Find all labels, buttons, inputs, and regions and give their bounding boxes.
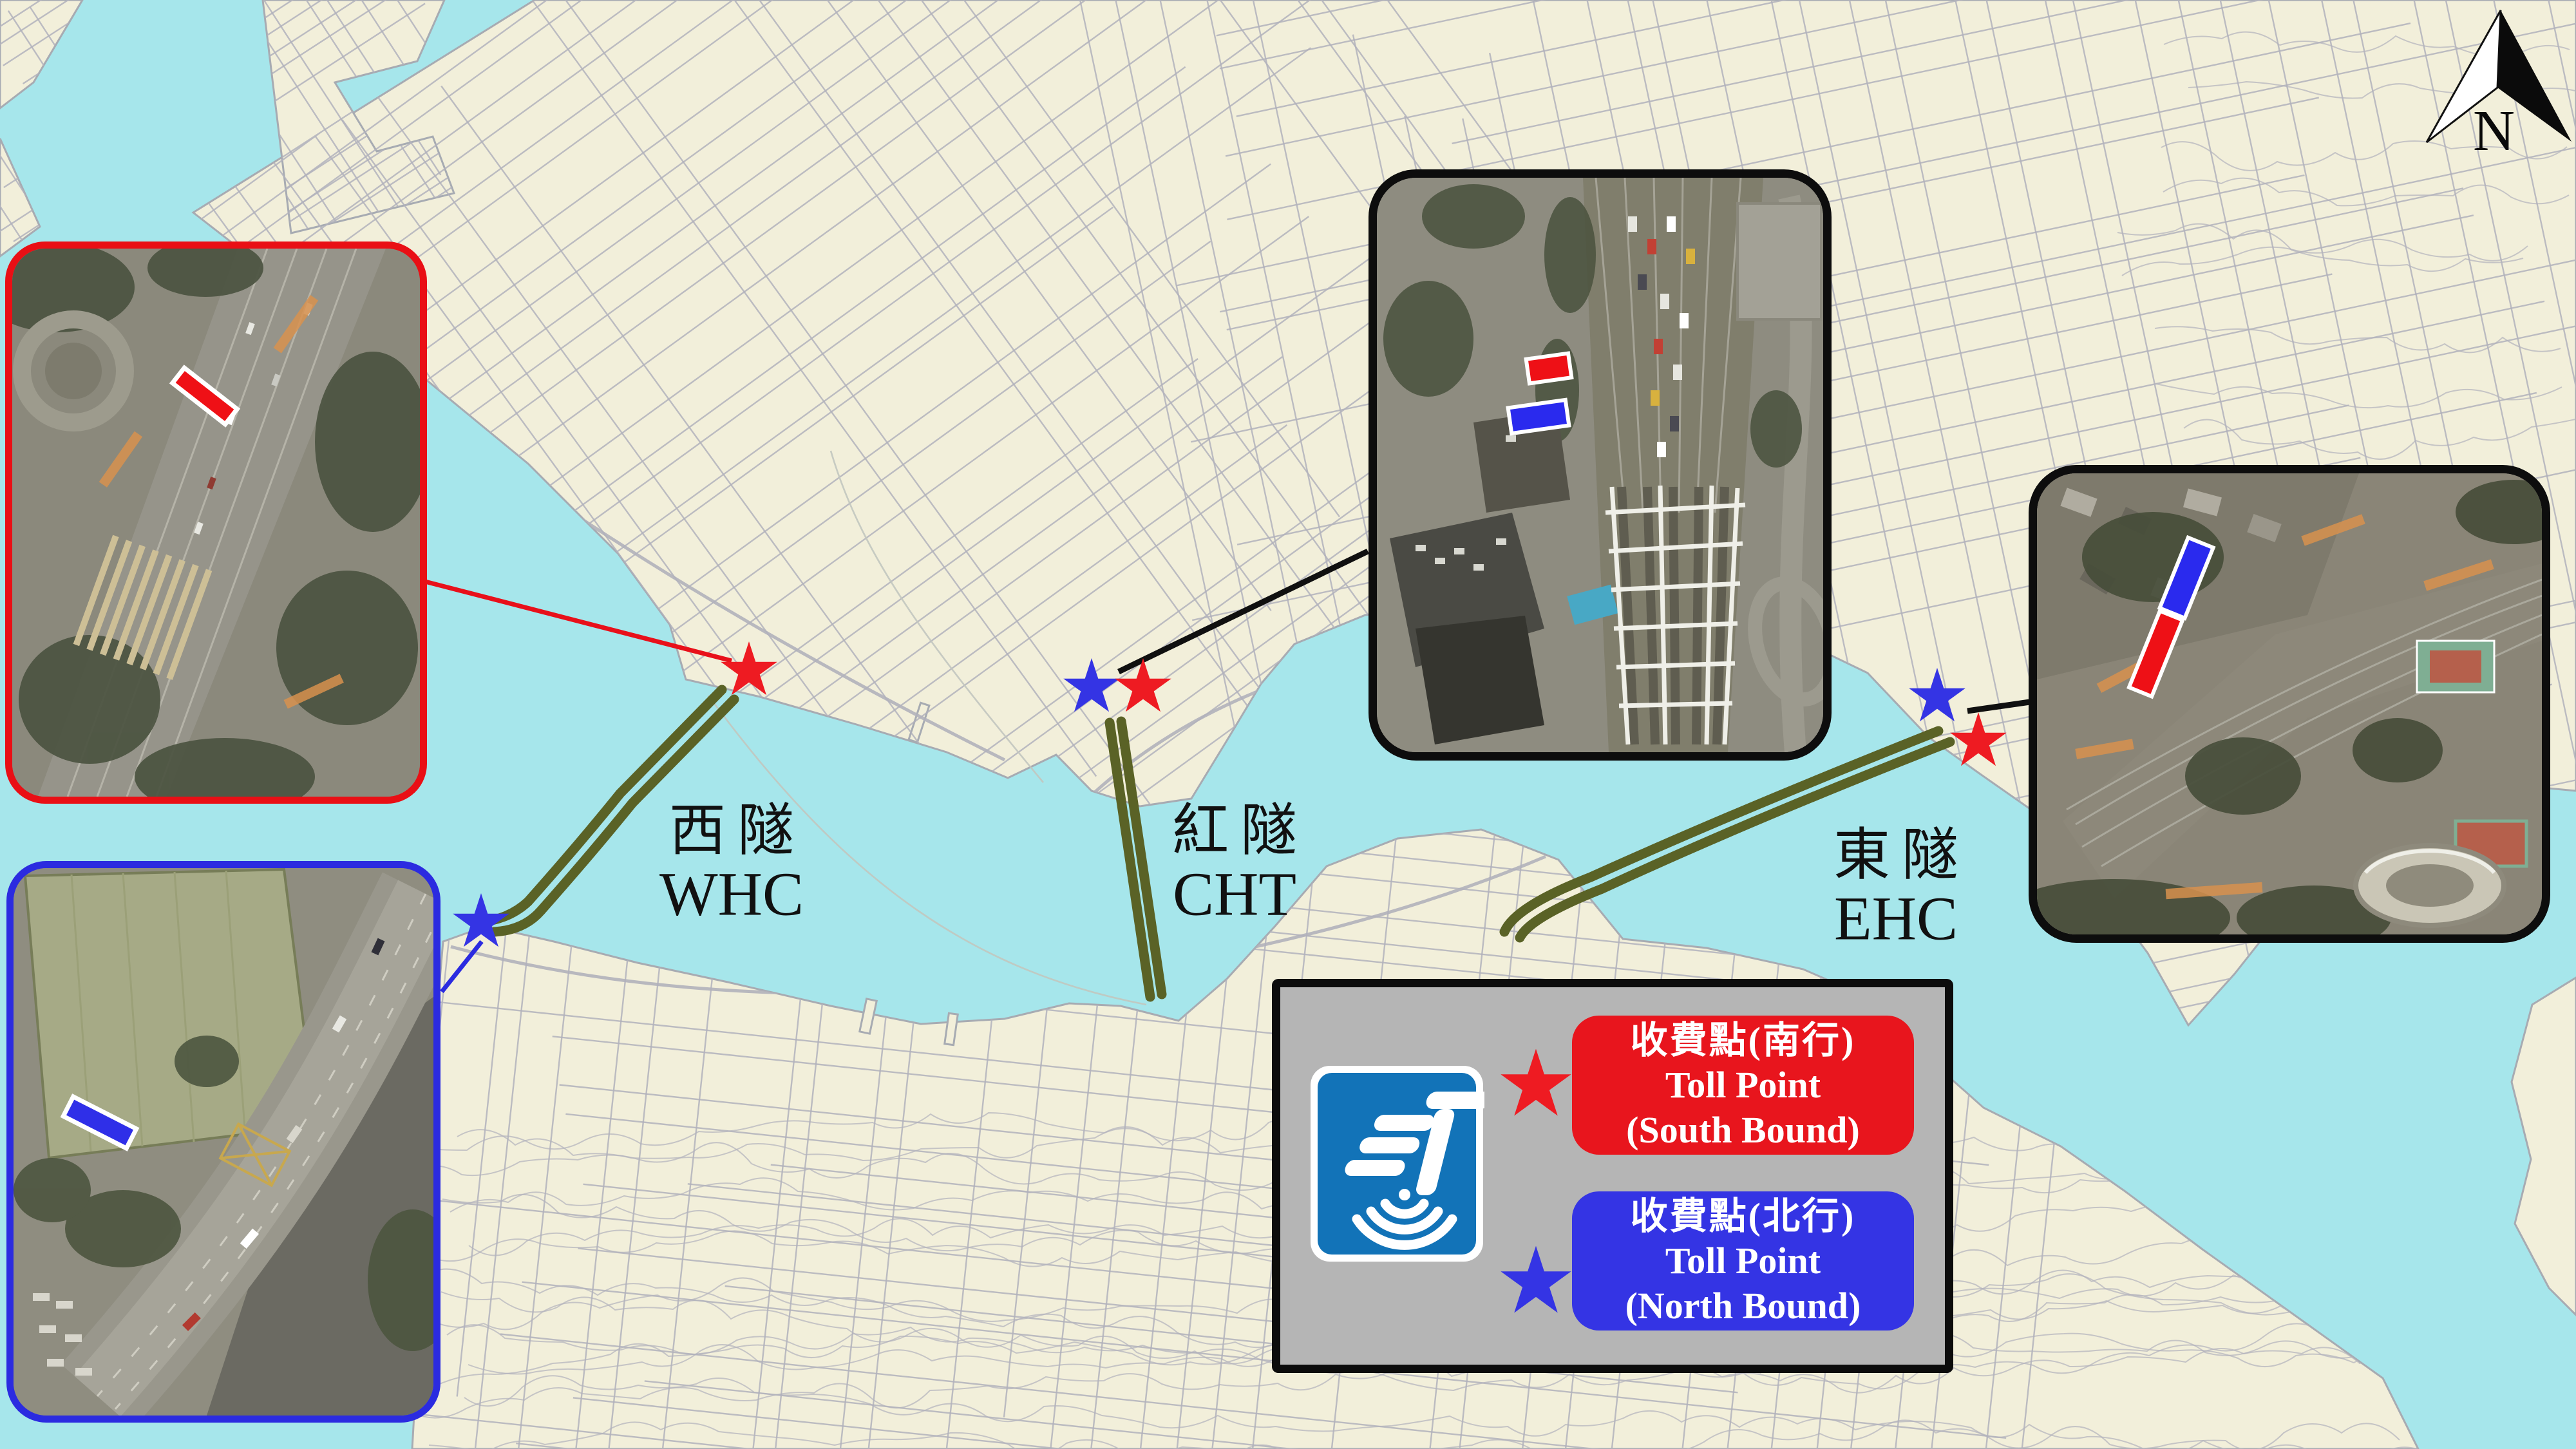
toll-location-marker-north [1508,400,1569,433]
tunnel-label-ehc-abbr: EHC [1822,886,1970,952]
toll-location-marker-south [1526,354,1572,384]
legend-red-star-icon [1494,1044,1578,1128]
legend-box: 收費點(南行) Toll Point (South Bound) 收費點(北行)… [1272,979,1953,1373]
hketoll-logo-icon [1309,1065,1484,1263]
inset-whc-southbound-satellite [5,241,427,804]
legend-south-bound-entry: 收費點(南行) Toll Point (South Bound) [1572,1016,1914,1155]
legend-north-sublabel-en: (North Bound) [1572,1283,1914,1329]
tunnel-label-ehc: 東隧 EHC [1822,826,1970,951]
tunnel-label-cht: 紅隧 CHT [1160,801,1309,927]
legend-south-sublabel-en: (South Bound) [1572,1108,1914,1153]
legend-south-label-cjk: 收費點(南行) [1572,1018,1914,1063]
tunnel-label-whc-abbr: WHC [658,862,806,927]
legend-north-label-en: Toll Point [1572,1238,1914,1283]
inset-ehc-toll-plaza-satellite [2029,465,2550,943]
tunnel-label-cht-abbr: CHT [1160,862,1309,927]
map-canvas: 收費點(南行) Toll Point (South Bound) 收費點(北行)… [0,0,2576,1449]
building [1738,204,1821,319]
legend-north-bound-entry: 收費點(北行) Toll Point (North Bound) [1572,1191,1914,1331]
tunnel-label-whc: 西隧 WHC [658,801,806,927]
legend-south-label-en: Toll Point [1572,1063,1914,1108]
tunnel-label-ehc-cjk: 東隧 [1822,826,1970,885]
north-arrow: N [2409,5,2576,160]
tunnel-label-cht-cjk: 紅隧 [1160,801,1309,861]
north-label: N [2473,98,2515,164]
tunnel-label-whc-cjk: 西隧 [658,801,806,861]
legend-north-label-cjk: 收費點(北行) [1572,1194,1914,1239]
stadium [2356,846,2504,925]
inset-whc-northbound-satellite [6,861,440,1423]
legend-blue-star-icon [1494,1241,1578,1325]
toll-canopy [1605,486,1745,744]
inset-cht-toll-plaza-satellite [1368,169,1832,761]
